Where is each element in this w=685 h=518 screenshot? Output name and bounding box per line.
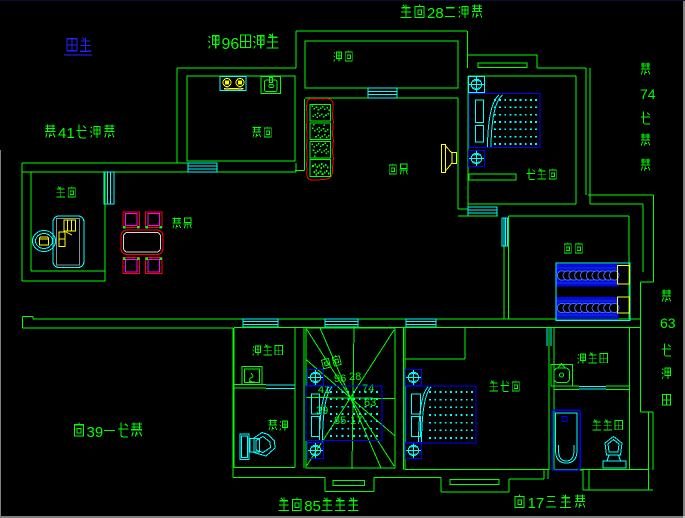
svg-text:85: 85 xyxy=(334,415,346,427)
svg-text:28: 28 xyxy=(349,371,361,383)
svg-text:28: 28 xyxy=(427,5,444,22)
svg-text:96: 96 xyxy=(222,36,240,53)
svg-text:74: 74 xyxy=(640,86,656,102)
svg-text:85: 85 xyxy=(304,498,321,515)
svg-text:96: 96 xyxy=(334,373,346,385)
svg-text:74: 74 xyxy=(362,383,374,395)
svg-text:63: 63 xyxy=(660,315,676,331)
svg-text:39: 39 xyxy=(87,424,104,441)
svg-text:41: 41 xyxy=(58,125,75,142)
svg-text:17: 17 xyxy=(528,495,545,512)
